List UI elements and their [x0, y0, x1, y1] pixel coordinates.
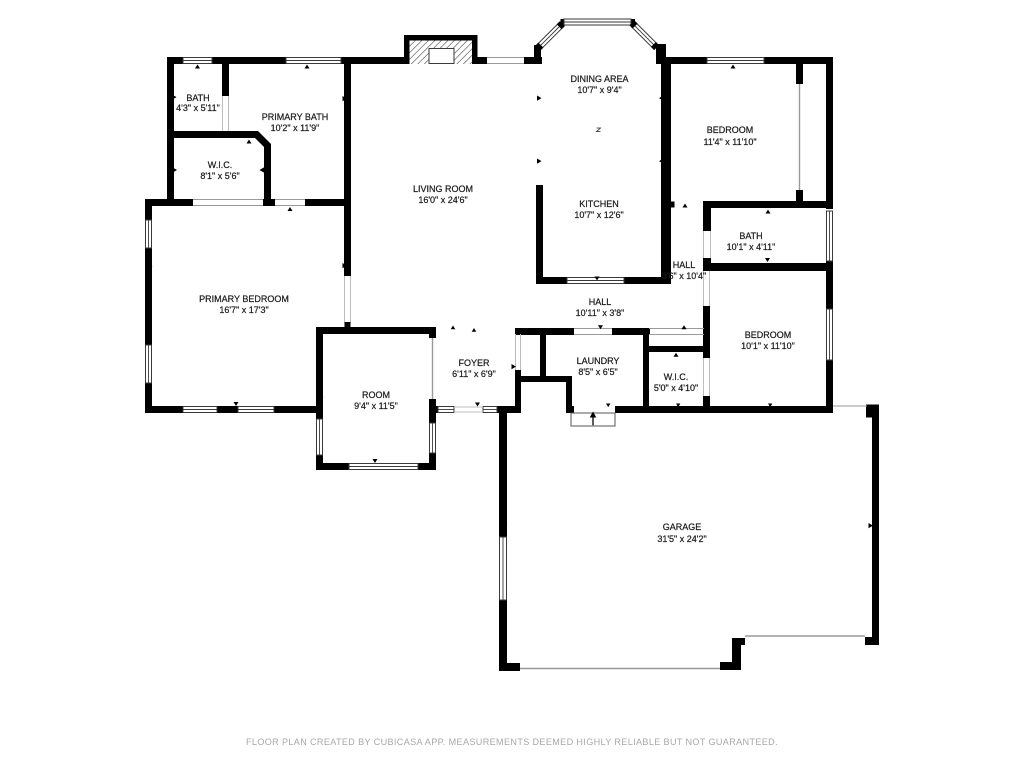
svg-text:8'1" x 5'6": 8'1" x 5'6" [200, 171, 239, 181]
svg-text:FOYER: FOYER [458, 358, 490, 368]
svg-text:31'5" x 24'2": 31'5" x 24'2" [657, 534, 706, 544]
svg-text:PRIMARY BATH: PRIMARY BATH [262, 112, 329, 122]
svg-text:10'2" x 11'9": 10'2" x 11'9" [271, 123, 320, 133]
svg-text:9'4" x 11'5": 9'4" x 11'5" [354, 401, 398, 411]
svg-text:ROOM: ROOM [362, 390, 390, 400]
svg-text:BATH: BATH [186, 93, 209, 103]
svg-text:FLOOR PLAN CREATED BY CUBICASA: FLOOR PLAN CREATED BY CUBICASA APP. MEAS… [246, 737, 778, 747]
svg-text:KITCHEN: KITCHEN [579, 199, 619, 209]
svg-text:BATH: BATH [739, 231, 762, 241]
svg-text:4'3" x 5'11": 4'3" x 5'11" [176, 103, 220, 113]
svg-text:16'0" x 24'6": 16'0" x 24'6" [418, 195, 467, 205]
svg-text:GARAGE: GARAGE [663, 522, 702, 532]
svg-text:W.I.C.: W.I.C. [208, 160, 233, 170]
svg-text:DINING AREA: DINING AREA [570, 74, 628, 84]
svg-text:BEDROOM: BEDROOM [745, 330, 792, 340]
svg-text:11'4" x 11'10": 11'4" x 11'10" [703, 137, 756, 147]
svg-text:8'5" x 6'5": 8'5" x 6'5" [578, 367, 617, 377]
svg-text:10'1" x 11'10": 10'1" x 11'10" [741, 341, 795, 351]
svg-text:3'6" x 10'4": 3'6" x 10'4" [662, 271, 706, 281]
svg-text:PRIMARY BEDROOM: PRIMARY BEDROOM [199, 294, 289, 304]
svg-text:LAUNDRY: LAUNDRY [577, 356, 620, 366]
svg-text:6'11" x 6'9": 6'11" x 6'9" [452, 369, 496, 379]
svg-text:16'7" x 17'3": 16'7" x 17'3" [219, 305, 268, 315]
svg-text:10'1" x 4'11": 10'1" x 4'11" [727, 242, 776, 252]
svg-text:BEDROOM: BEDROOM [707, 125, 754, 135]
svg-text:W.I.C.: W.I.C. [664, 372, 689, 382]
svg-text:LIVING ROOM: LIVING ROOM [413, 184, 473, 194]
svg-text:10'7" x 12'6": 10'7" x 12'6" [574, 210, 623, 220]
svg-text:10'11" x 3'8": 10'11" x 3'8" [576, 308, 625, 318]
svg-text:5'0" x 4'10": 5'0" x 4'10" [654, 383, 698, 393]
svg-text:HALL: HALL [589, 297, 612, 307]
svg-text:HALL: HALL [673, 260, 696, 270]
svg-text:10'7" x 9'4": 10'7" x 9'4" [577, 85, 621, 95]
